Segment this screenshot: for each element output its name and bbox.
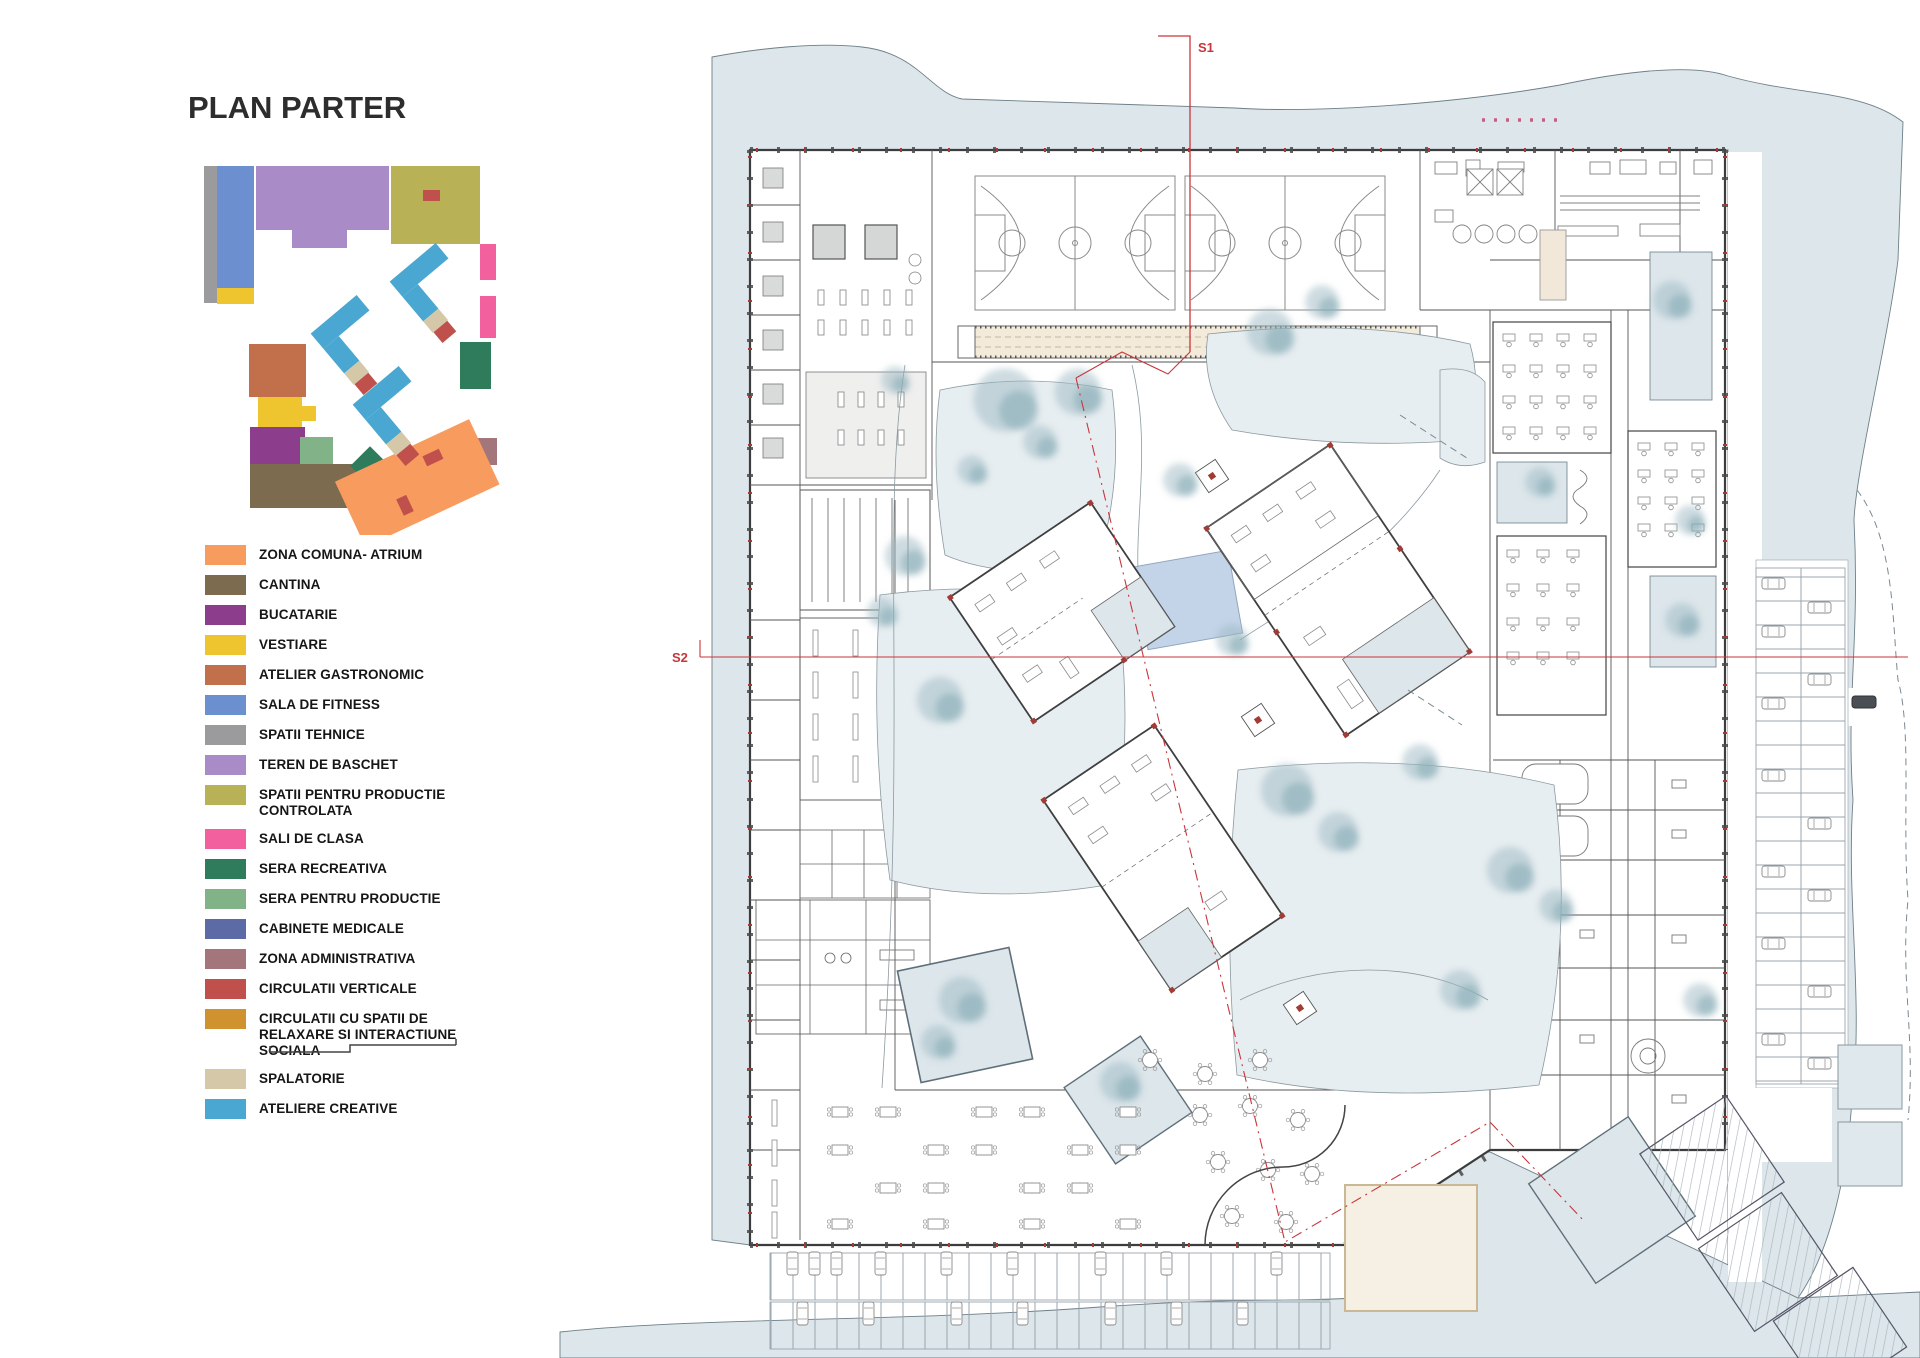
section-label-s1: S1: [1198, 40, 1214, 55]
paved-square: [1345, 1185, 1477, 1311]
classroom: [1497, 536, 1606, 715]
classroom: [1628, 431, 1716, 567]
car-icon: [1852, 696, 1876, 708]
site-plan: S1 S2: [0, 0, 1920, 1358]
scale-bar: [270, 1039, 456, 1052]
section-label-s2: S2: [672, 650, 688, 665]
utility-pad: [1838, 1045, 1902, 1109]
classroom: [1493, 322, 1611, 453]
parking-east: [1756, 568, 1876, 1084]
utility-pad: [1838, 1122, 1902, 1186]
courtyard-patch: [1650, 252, 1712, 400]
